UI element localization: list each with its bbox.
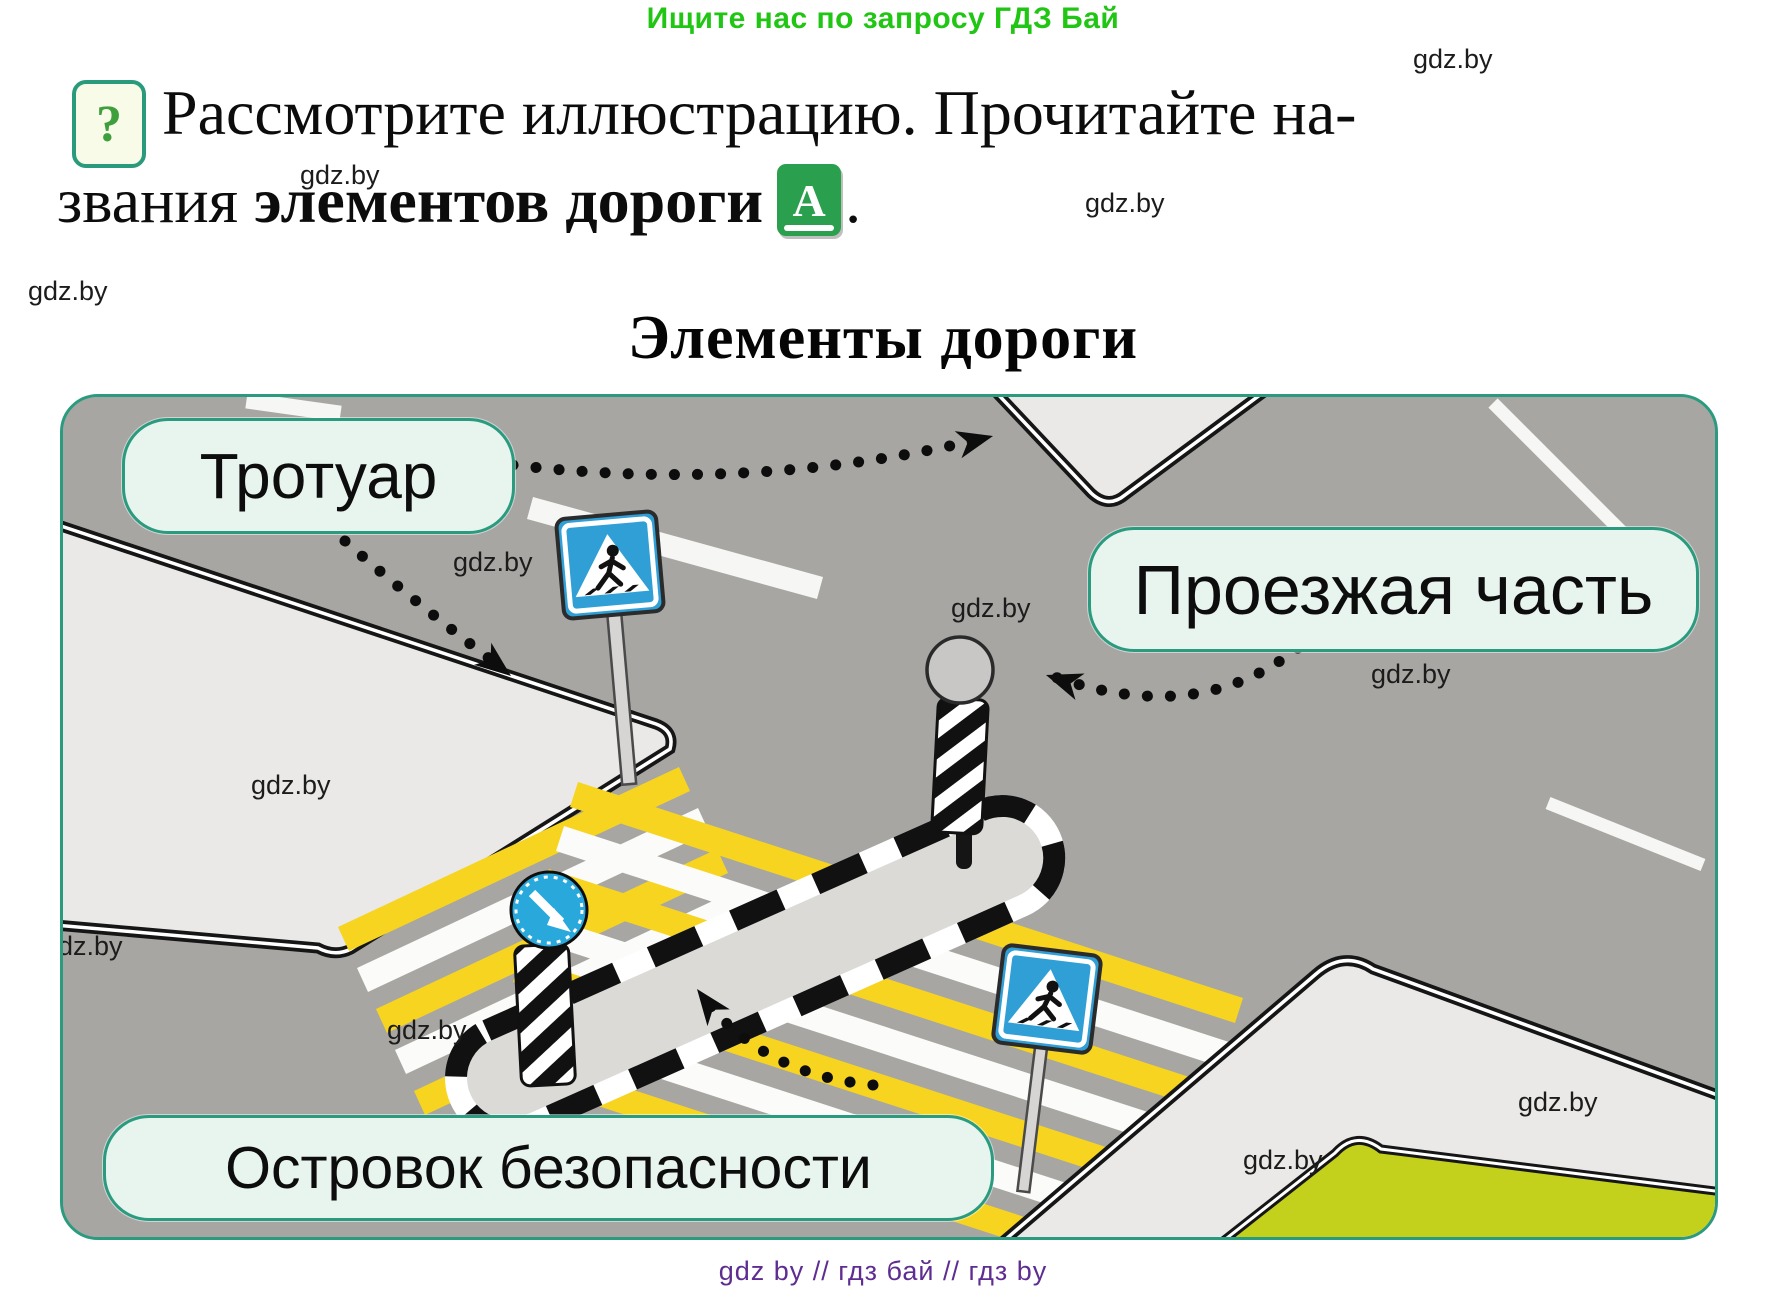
task-text-period: . [845, 164, 861, 238]
label-roadway-text: Проезжая часть [1134, 550, 1654, 630]
watermark: gdz.by [1371, 659, 1451, 690]
dictionary-letter: А [793, 174, 826, 227]
label-island: Островок безопасности [103, 1115, 994, 1221]
label-island-text: Островок безопасности [225, 1134, 872, 1202]
footer-links: gdz by // гдз бай // гдз by [0, 1256, 1766, 1287]
figure-title: Элементы дороги [0, 303, 1766, 374]
dictionary-icon: А [777, 164, 841, 236]
label-sidewalk: Тротуар [122, 418, 515, 534]
watermark: gdz.by [300, 160, 380, 191]
task-text-line2: звания элементов дорогиА. [57, 164, 861, 238]
watermark: gdz.by [251, 770, 331, 801]
watermark: gdz.by [951, 593, 1031, 624]
watermark: gdz.by [1243, 1145, 1323, 1176]
question-mark: ? [96, 95, 122, 154]
road-elements-illustration: gdz.by gdz.by gdz.by gdz.by gdz.by gdz.b… [60, 394, 1718, 1240]
label-roadway: Проезжая часть [1088, 527, 1699, 652]
promo-banner: Ищите нас по запросу ГДЗ Бай [0, 2, 1766, 36]
ball-icon [927, 637, 993, 703]
book-pages-icon [784, 225, 834, 231]
label-sidewalk-text: Тротуар [200, 439, 438, 513]
watermark: gdz.by [28, 276, 108, 307]
watermark: gdz.by [1518, 1087, 1598, 1118]
watermark: gdz.by [1085, 188, 1165, 219]
watermark: gdz.by [1413, 44, 1493, 75]
watermark: gdz.by [453, 547, 533, 578]
task-text-normal: звания [57, 164, 254, 238]
watermark: gdz.by [387, 1015, 467, 1046]
question-icon: ? [72, 80, 146, 168]
task-text-line1: Рассмотрите иллюстрацию. Прочитайте на- [162, 76, 1722, 150]
watermark: gdz.by [60, 931, 123, 962]
